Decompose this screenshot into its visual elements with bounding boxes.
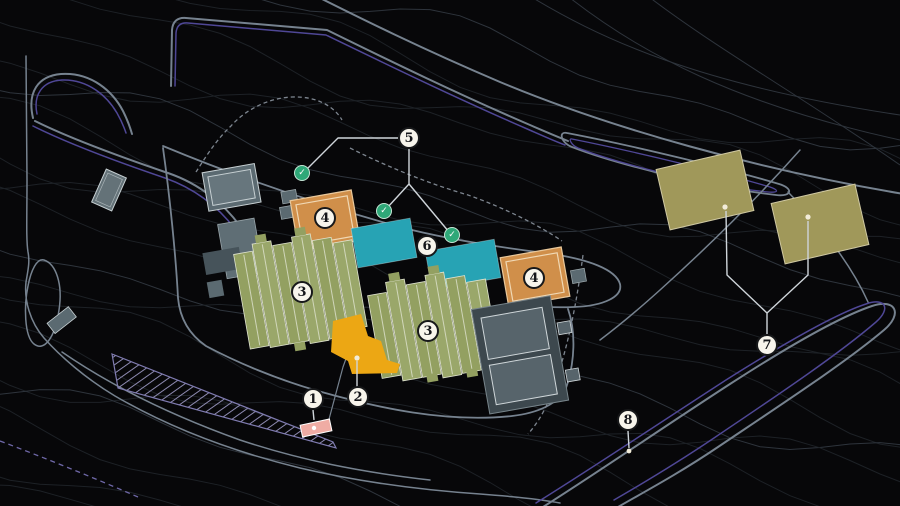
check-marker-icon: ✓ (294, 165, 310, 181)
building-gray-nw (202, 164, 261, 212)
check-marker-icon: ✓ (376, 203, 392, 219)
check-glyph: ✓ (298, 168, 306, 178)
callout-number: 4 (320, 212, 329, 225)
road-hairpin-purple (536, 302, 885, 503)
callout-badge-3b[interactable]: 3 (417, 320, 439, 342)
building-loop-small (47, 307, 76, 334)
callout-badge-6[interactable]: 6 (416, 235, 438, 257)
callout-number: 3 (297, 286, 306, 299)
building-teal-a (351, 218, 417, 268)
leader-8 (628, 431, 629, 448)
leader-5-left (305, 138, 398, 171)
contour-line (0, 398, 900, 506)
contour-line (0, 0, 900, 163)
contour-line (0, 0, 900, 150)
dot-road-8 (627, 449, 632, 454)
building-tiny-square (207, 280, 225, 298)
callout-number: 8 (623, 414, 632, 427)
check-glyph: ✓ (448, 230, 456, 240)
callout-number: 5 (404, 132, 413, 145)
callout-badge-3a[interactable]: 3 (291, 281, 313, 303)
callout-badge-4a[interactable]: 4 (314, 207, 336, 229)
callout-number: 4 (529, 272, 538, 285)
callout-badge-5[interactable]: 5 (398, 127, 420, 149)
callout-number: 3 (423, 325, 432, 338)
dot-amber (354, 355, 359, 360)
callout-badge-4b[interactable]: 4 (523, 267, 545, 289)
building-west-lone (92, 169, 127, 211)
road-hairpin (543, 304, 895, 506)
callout-badge-2[interactable]: 2 (347, 386, 369, 408)
contour-line (520, 0, 900, 115)
building-slate-complex (471, 293, 583, 414)
callout-number: 7 (762, 339, 771, 352)
callout-badge-8[interactable]: 8 (617, 409, 639, 431)
contour-line (0, 471, 900, 506)
dot-pink (312, 426, 316, 430)
contour-line (640, 0, 900, 165)
callout-number: 2 (353, 391, 362, 404)
callout-number: 6 (422, 240, 431, 253)
building-khaki-7b (771, 184, 869, 264)
callout-badge-1[interactable]: 1 (302, 388, 324, 410)
dashed-purple-sw (0, 441, 138, 497)
site-plan-canvas (0, 0, 900, 506)
road-top-right (316, 0, 900, 194)
site-plan: 1 2 3 3 4 4 5 6 7 8 ✓ ✓ ✓ (0, 0, 900, 506)
road-corner (171, 18, 568, 141)
leader-1 (313, 410, 314, 420)
callout-badge-7[interactable]: 7 (756, 334, 778, 356)
leader-5-down (387, 149, 409, 208)
dashed-boundary-nw (196, 97, 342, 172)
check-glyph: ✓ (380, 206, 388, 216)
contour-line (560, 0, 900, 140)
dot-khaki-b (805, 214, 810, 219)
check-marker-icon: ✓ (444, 227, 460, 243)
callout-number: 1 (308, 393, 317, 406)
building-khaki-7a (656, 150, 754, 230)
dot-khaki-a (722, 204, 727, 209)
